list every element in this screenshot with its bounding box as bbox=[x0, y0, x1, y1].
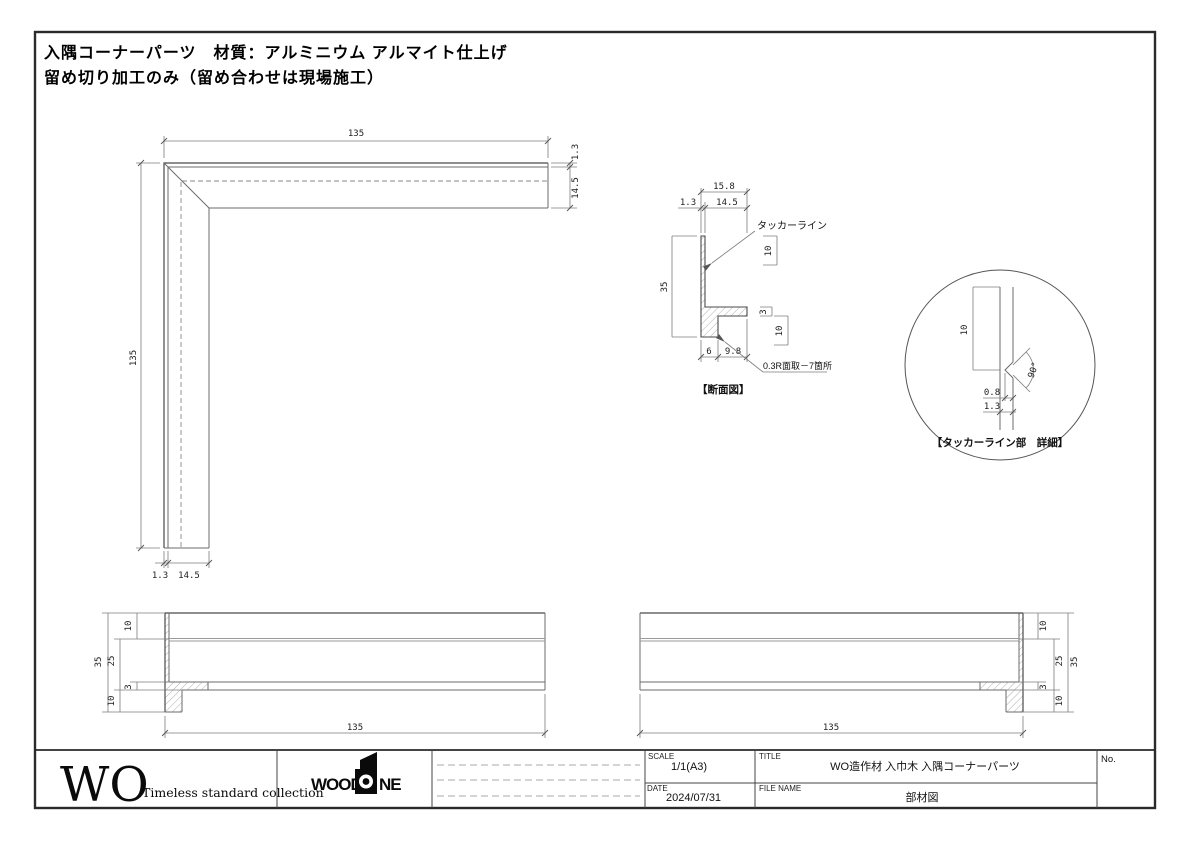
elevL-dim-mid: 25 bbox=[107, 656, 117, 667]
detail-dim-groove-depth: 0.8 bbox=[984, 388, 1000, 398]
plan-dim-left-label: 135 bbox=[129, 350, 139, 366]
section-dim-height: 35 bbox=[660, 282, 670, 293]
wo-tagline: Timeless standard collection bbox=[142, 785, 324, 800]
plan-dim-bottom-outer-label: 1.3 bbox=[152, 571, 168, 581]
tacker-line bbox=[169, 639, 545, 642]
detail-view: 10 0.8 1.3 90° 【タッカーライン部 詳細】 bbox=[905, 270, 1095, 460]
plan-dim-right-inner-label: 14.5 bbox=[571, 177, 581, 199]
detail-caption: 【タッカーライン部 詳細】 bbox=[932, 436, 1069, 449]
detail-angle-label: 90° bbox=[1027, 361, 1042, 380]
elevation-right: 35 25 10 10 3 135 bbox=[637, 613, 1080, 738]
woodone-text-right: NE bbox=[379, 775, 401, 794]
elevation-left-cut-face bbox=[165, 613, 208, 712]
revision-dashed-lines bbox=[437, 765, 640, 796]
section-caption: 【断面図】 bbox=[697, 383, 750, 396]
title-block: WO Timeless standard collection WOOD NE … bbox=[60, 750, 1116, 813]
elevR-dim-mid: 25 bbox=[1055, 656, 1065, 667]
section-profile bbox=[701, 236, 747, 337]
elevR-dim-upper: 10 bbox=[1039, 621, 1049, 632]
plan-view: 135 135 1.3 14.5 1.3 14.5 bbox=[129, 129, 581, 581]
section-dim-web: 1.3 bbox=[680, 198, 696, 208]
elevation-right-cut-face bbox=[980, 613, 1023, 712]
section-dim-flange-zone: 10 bbox=[775, 326, 785, 337]
section-dim-flange-thickness: 3 bbox=[759, 309, 769, 314]
elevR-dim-lower: 10 bbox=[1055, 696, 1065, 707]
miter-joint-line bbox=[164, 163, 209, 208]
elevL-dim-height: 35 bbox=[94, 657, 104, 668]
plan-dim-right-outer-label: 1.3 bbox=[571, 144, 581, 160]
section-view: 15.8 1.3 14.5 35 10 3 10 6 9.8 タッカーライン 0… bbox=[660, 182, 832, 396]
drawing-sheet: 入隅コーナーパーツ 材質：アルミニウム アルマイト仕上げ 留め切り加工のみ（留め… bbox=[0, 0, 1190, 841]
elevR-dim-flange: 3 bbox=[1039, 684, 1049, 689]
woodone-text-left: WOOD bbox=[311, 775, 362, 794]
plan-dim-bottom-inner-label: 14.5 bbox=[178, 571, 200, 581]
drawing-canvas: 入隅コーナーパーツ 材質：アルミニウム アルマイト仕上げ 留め切り加工のみ（留め… bbox=[0, 0, 1190, 841]
elevL-dim-upper: 10 bbox=[124, 621, 134, 632]
drawing-note: 入隅コーナーパーツ 材質：アルミニウム アルマイト仕上げ 留め切り加工のみ（留め… bbox=[44, 43, 508, 87]
title-value: WO造作材 入巾木 入隅コーナーパーツ bbox=[830, 759, 1020, 773]
title-label: TITLE bbox=[759, 752, 781, 761]
section-dim-foot: 6 bbox=[706, 347, 711, 357]
plan-dim-top-label: 135 bbox=[348, 129, 364, 139]
section-dim-tacker: 10 bbox=[764, 246, 774, 257]
note-line2: 留め切り加工のみ（留め合わせは現場施工） bbox=[44, 68, 384, 87]
wo-logo: WO bbox=[60, 757, 149, 813]
scale-value: 1/1(A3) bbox=[671, 761, 707, 773]
elevation-left: 35 25 10 10 3 135 bbox=[94, 613, 548, 738]
elevL-dim-flange: 3 bbox=[124, 684, 134, 689]
number-label: No. bbox=[1101, 754, 1116, 765]
tacker-groove-notch bbox=[1005, 362, 1013, 378]
file-name-value: 部材図 bbox=[906, 790, 939, 804]
woodone-logo: WOOD NE bbox=[311, 752, 401, 794]
detail-dim-from-top: 10 bbox=[960, 325, 970, 336]
section-chamfer-note: 0.3R面取－7箇所 bbox=[763, 360, 832, 371]
elevR-dim-length: 135 bbox=[823, 723, 839, 733]
elevL-dim-length: 135 bbox=[347, 723, 363, 733]
page-border bbox=[35, 32, 1155, 808]
note-line1: 入隅コーナーパーツ 材質：アルミニウム アルマイト仕上げ bbox=[44, 43, 508, 62]
date-label: DATE bbox=[647, 784, 668, 793]
section-dim-total-width: 15.8 bbox=[713, 182, 735, 192]
tacker-line bbox=[640, 639, 1019, 642]
date-value: 2024/07/31 bbox=[666, 792, 721, 804]
section-dim-inner-width: 14.5 bbox=[716, 198, 738, 208]
elevR-dim-height: 35 bbox=[1070, 657, 1080, 668]
section-tacker-label: タッカーライン bbox=[757, 220, 827, 232]
elevL-dim-lower: 10 bbox=[107, 696, 117, 707]
detail-dim-web: 1.3 bbox=[984, 402, 1000, 412]
file-name-label: FILE NAME bbox=[759, 784, 801, 793]
scale-label: SCALE bbox=[648, 752, 674, 761]
woodone-flag-icon bbox=[360, 752, 377, 769]
